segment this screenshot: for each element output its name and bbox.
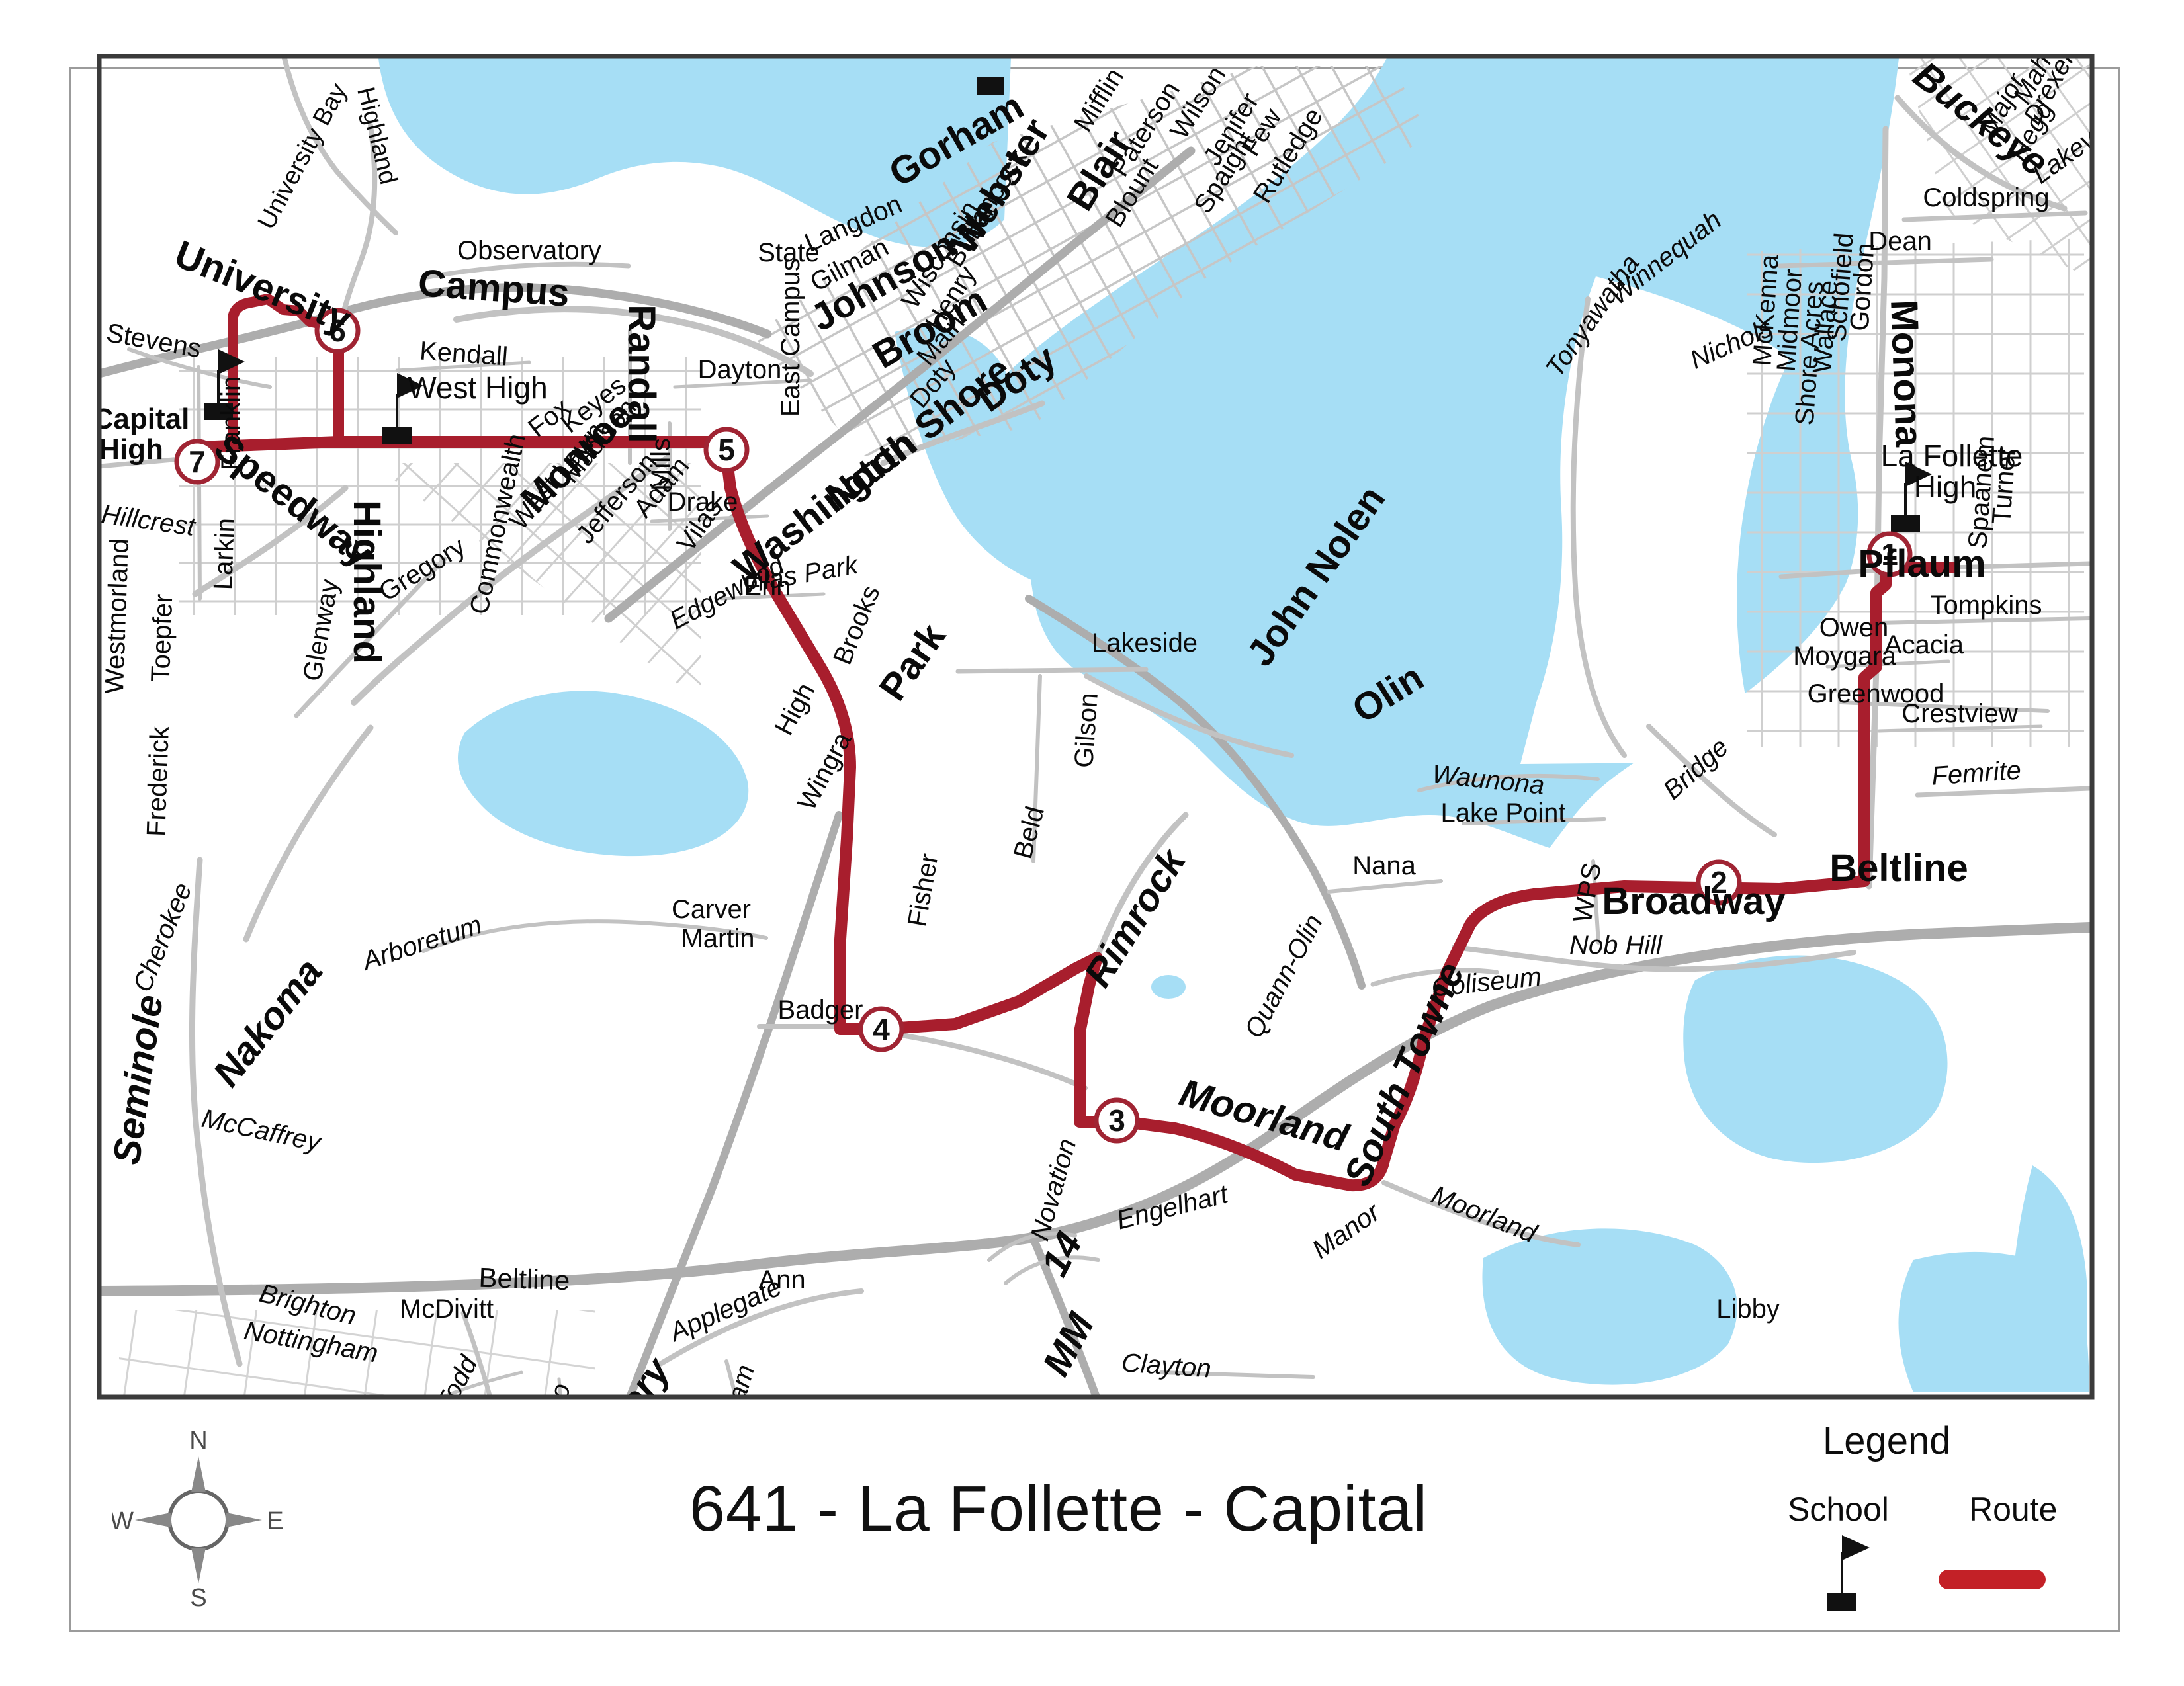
street-label: Brooks xyxy=(828,581,885,669)
street-label: Moorland xyxy=(1175,1071,1354,1160)
street-label: Tompkins xyxy=(1931,591,2042,620)
legend-school-label: School xyxy=(1788,1490,1889,1529)
school-flag-icon xyxy=(1818,1533,1878,1612)
street-label: Watson xyxy=(799,1425,889,1458)
road xyxy=(284,1466,463,1483)
water-body xyxy=(1482,1228,1737,1384)
street-label: Lakeside xyxy=(1092,628,1198,657)
street-label: Acacia xyxy=(1884,630,1964,659)
street-label: Martin xyxy=(681,924,754,953)
street-label: Post xyxy=(457,1428,514,1462)
street-label: Rimrock xyxy=(1076,840,1195,995)
street-label: Turner xyxy=(1987,446,2021,525)
stop-number: 3 xyxy=(1108,1103,1125,1138)
street-label: Pelham xyxy=(328,1390,422,1453)
street-label: Pflaum xyxy=(1858,542,1986,585)
street-label: Gilson xyxy=(1069,692,1104,769)
street-label: Nakoma xyxy=(205,950,331,1095)
street-label: Nana xyxy=(1352,851,1416,880)
compass-north-point xyxy=(191,1456,206,1492)
street-label: Moygara xyxy=(1793,642,1896,671)
road xyxy=(423,1463,574,1478)
road xyxy=(1904,213,2085,220)
street-label: Libby xyxy=(1716,1294,1780,1324)
street-label: Carver xyxy=(672,895,751,924)
street-label: Hillcrest xyxy=(99,499,198,542)
compass-label-w: W xyxy=(112,1507,134,1535)
street-label: Manor xyxy=(1307,1197,1385,1265)
stop-number: 4 xyxy=(873,1012,890,1046)
street-label: Coho xyxy=(535,1381,576,1449)
street-label: Seminole xyxy=(105,992,171,1167)
road xyxy=(1032,1236,1166,1673)
legend-route-label: Route xyxy=(1969,1490,2057,1529)
water-body xyxy=(1683,956,1947,1163)
street-label: High xyxy=(99,433,163,466)
street-label: Toepfer xyxy=(146,593,179,683)
street-label: Ann xyxy=(758,1265,805,1294)
street-label: Fish Hatchery xyxy=(498,1349,679,1583)
road xyxy=(958,669,1146,671)
street-label: WPS xyxy=(1568,861,1607,925)
road xyxy=(775,1443,916,1450)
street-label: Owen xyxy=(1819,613,1889,642)
route-stop-3: 3 xyxy=(1096,1100,1137,1141)
compass-south-point xyxy=(191,1548,206,1583)
street-label: MM xyxy=(1034,1305,1103,1382)
street-label: Glenway xyxy=(298,577,344,683)
street-label: Monona xyxy=(1882,299,1931,448)
compass-circle xyxy=(169,1491,228,1549)
road xyxy=(1329,881,1441,892)
compass-label-e: E xyxy=(267,1507,283,1535)
street-label: Gordon xyxy=(1845,242,1880,332)
street-label: Badger xyxy=(778,995,863,1025)
compass-label-n: N xyxy=(189,1427,207,1454)
street-label: West High xyxy=(408,370,547,405)
street-label: Nottingham xyxy=(242,1316,380,1369)
street-label: Arboretum xyxy=(357,910,485,976)
street-label: University Bay xyxy=(253,79,353,233)
compass-rose: N S W E xyxy=(112,1422,284,1607)
compass-east-point xyxy=(226,1513,262,1527)
water-body xyxy=(316,1397,356,1423)
water-body xyxy=(1899,1252,2090,1392)
street-label: Latham xyxy=(708,1361,760,1454)
street-label: Frederick xyxy=(142,725,175,837)
street-label: Crestview xyxy=(1901,699,2018,728)
route-stop-4: 4 xyxy=(861,1009,902,1050)
street-label: Park xyxy=(871,615,954,708)
route-stop-5: 5 xyxy=(706,429,747,470)
road xyxy=(246,728,371,939)
street-label: University xyxy=(169,232,357,341)
stop-number: 5 xyxy=(718,433,735,467)
route-line-icon xyxy=(1939,1570,2046,1589)
street-label: Capital xyxy=(93,403,190,435)
street-label: Beltline xyxy=(1829,847,1968,890)
road xyxy=(881,1032,1085,1088)
street-label: Kendall xyxy=(419,336,509,371)
compass-west-point xyxy=(135,1513,171,1527)
street-label: Broadway xyxy=(1602,880,1785,923)
street-label: Lake Point xyxy=(1440,798,1565,827)
legend-heading: Legend xyxy=(1823,1419,1951,1463)
street-label: Clayton xyxy=(1121,1348,1212,1383)
water-body xyxy=(1151,975,1186,999)
street-label: Larkin xyxy=(208,517,240,590)
street-label: Beltline xyxy=(478,1262,570,1296)
map-title: 641 - La Follette - Capital xyxy=(562,1472,1555,1546)
street-label: Fisher xyxy=(902,851,944,929)
street-label: Beld xyxy=(1008,803,1050,862)
street-label: McDivitt xyxy=(400,1294,494,1324)
street-label: East Campus xyxy=(776,258,805,417)
street-label: Nob Hill xyxy=(1569,931,1663,960)
water-body xyxy=(458,691,748,856)
street-label: Campus xyxy=(417,261,571,315)
street-label: Moorland xyxy=(1427,1180,1542,1249)
street-label: McCaffrey xyxy=(199,1104,325,1158)
stop-number: 7 xyxy=(189,444,206,479)
street-label: Westmorland xyxy=(100,538,134,694)
street-label: Todd xyxy=(431,1350,484,1415)
street-label: Quann-Olin xyxy=(1239,909,1329,1042)
street-label: Coldspring xyxy=(1923,183,2049,212)
street-label: High xyxy=(769,678,820,739)
street-label: Femrite xyxy=(1931,755,2022,790)
street-label: Observatory xyxy=(457,236,601,265)
street-label: Cherokee xyxy=(128,878,198,995)
compass-label-s: S xyxy=(190,1584,206,1607)
street-label: Dayton xyxy=(698,355,782,384)
